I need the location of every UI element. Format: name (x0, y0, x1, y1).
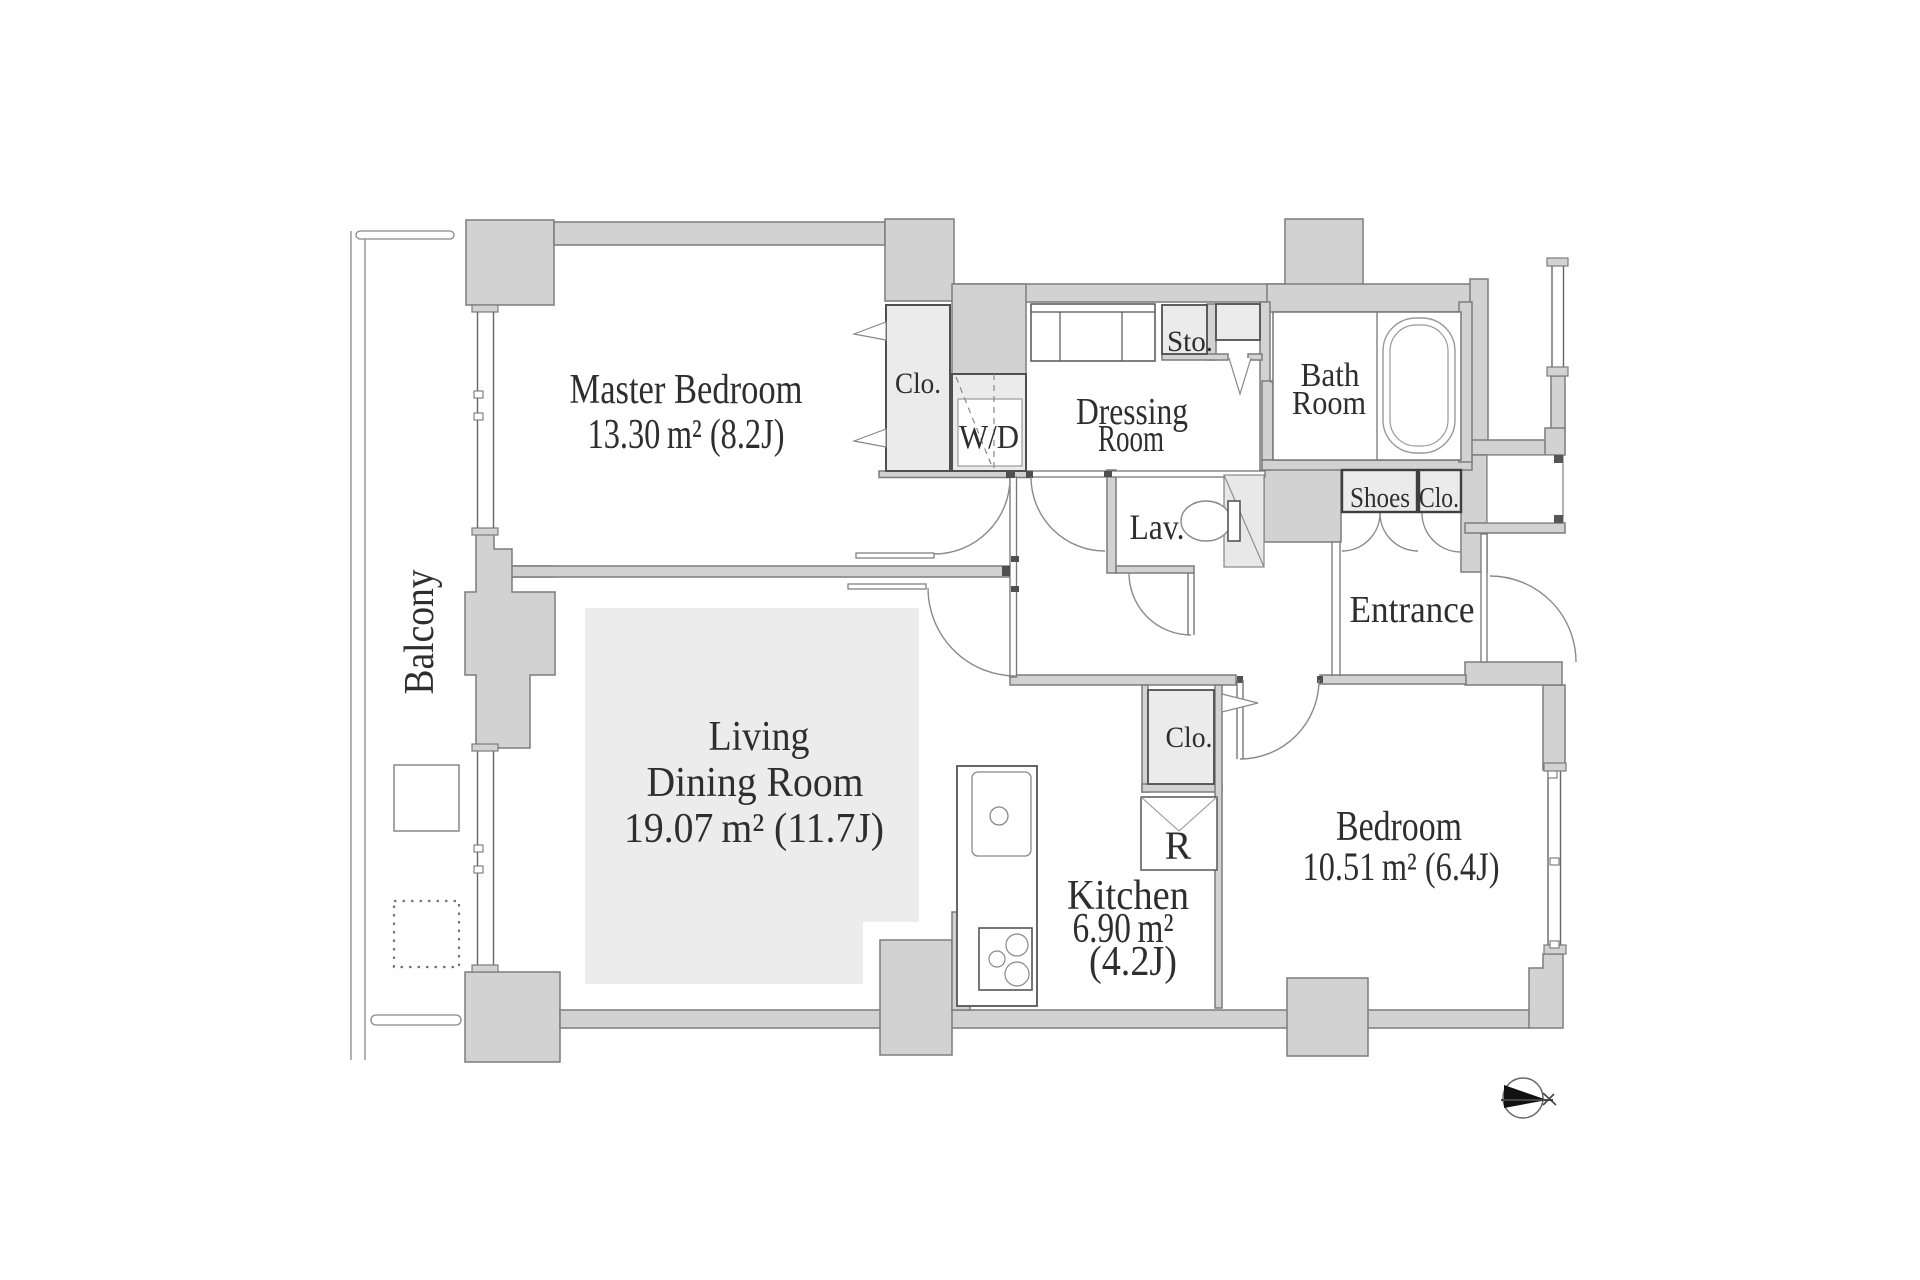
svg-text:10.51 m² (6.4J): 10.51 m² (6.4J) (1303, 844, 1500, 889)
svg-text:Clo.: Clo. (895, 367, 941, 400)
svg-text:R: R (1165, 823, 1192, 868)
svg-text:Master Bedroom: Master Bedroom (570, 367, 803, 413)
svg-text:Living: Living (709, 714, 810, 760)
svg-text:W/D: W/D (959, 419, 1019, 456)
svg-text:(4.2J): (4.2J) (1089, 939, 1177, 985)
svg-text:Entrance: Entrance (1350, 589, 1475, 631)
svg-text:Shoes: Shoes (1350, 482, 1410, 514)
svg-text:Clo.: Clo. (1166, 721, 1213, 754)
svg-text:Clo.: Clo. (1419, 482, 1459, 514)
svg-text:Dining Room: Dining Room (647, 760, 864, 806)
svg-text:13.30 m² (8.2J): 13.30 m² (8.2J) (588, 412, 785, 458)
svg-text:19.07 m² (11.7J): 19.07 m² (11.7J) (624, 806, 884, 852)
svg-text:Sto.: Sto. (1167, 325, 1213, 358)
svg-text:Room: Room (1098, 418, 1164, 460)
svg-text:Balcony: Balcony (397, 570, 443, 695)
svg-text:Room: Room (1292, 385, 1366, 422)
svg-text:Lav.: Lav. (1130, 507, 1185, 547)
